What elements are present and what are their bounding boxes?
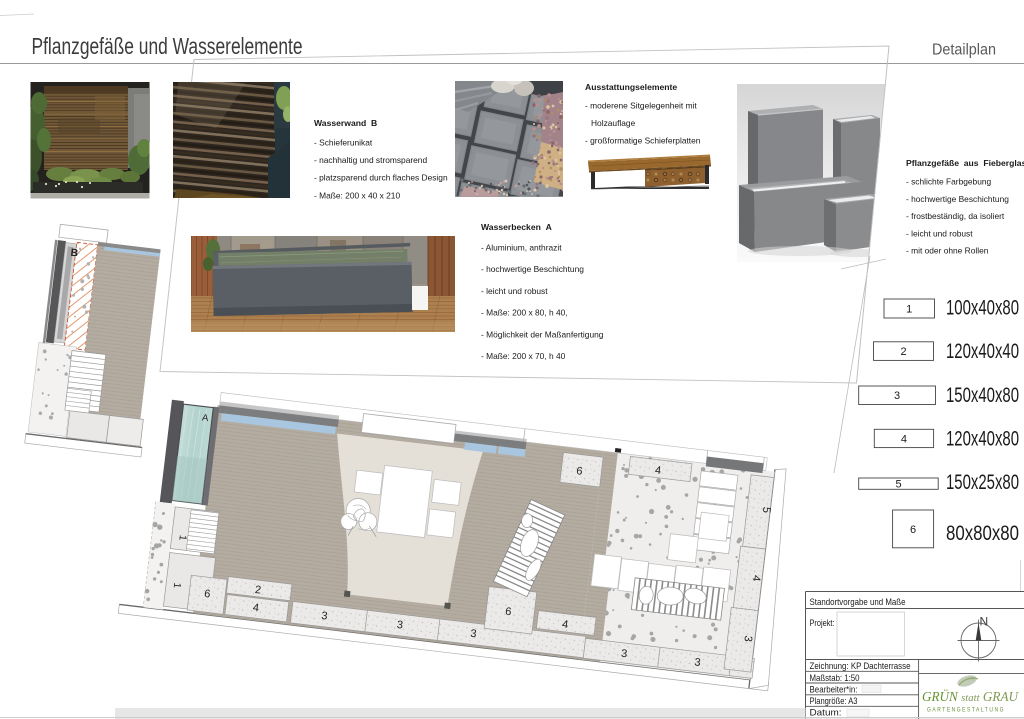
svg-text:Datum:: Datum: (810, 708, 842, 718)
svg-text:1: 1 (906, 304, 912, 316)
svg-text:Zeichnung: KP Dachterrasse: Zeichnung: KP Dachterrasse (810, 661, 911, 671)
svg-text:- Möglichkeit der Maßanfertigu: - Möglichkeit der Maßanfertigung (481, 329, 604, 339)
svg-text:- Maße: 200 x 70, h 40: - Maße: 200 x 70, h 40 (481, 351, 566, 361)
svg-text:Standortvorgabe und Maße: Standortvorgabe und Maße (810, 597, 906, 607)
svg-text:- moderene Sitgelegenheit mit: - moderene Sitgelegenheit mit (585, 101, 697, 111)
svg-text:Detailplan: Detailplan (932, 42, 996, 59)
svg-text:- Schieferunikat: - Schieferunikat (314, 138, 373, 148)
svg-text:- leicht und robust: - leicht und robust (906, 228, 973, 238)
svg-text:- nachhaltig und stromsparend: - nachhaltig und stromsparend (314, 155, 427, 165)
svg-text:120x40x40: 120x40x40 (946, 340, 1019, 363)
svg-text:6: 6 (910, 524, 916, 536)
svg-text:Pflanzgefäße aus Fieberglas: Pflanzgefäße aus Fieberglas (906, 158, 1024, 168)
svg-text:Wasserwand B: Wasserwand B (314, 118, 377, 128)
svg-text:Bearbeiter*in:: Bearbeiter*in: (810, 684, 858, 694)
svg-text:Wasserbecken A: Wasserbecken A (481, 222, 552, 232)
svg-text:Ausstattungselemente: Ausstattungselemente (585, 82, 677, 92)
svg-text:100x40x80: 100x40x80 (946, 297, 1019, 320)
svg-text:2: 2 (900, 346, 906, 358)
svg-text:Maßstab: 1:50: Maßstab: 1:50 (810, 673, 860, 683)
svg-text:N: N (980, 615, 989, 629)
svg-text:4: 4 (901, 433, 907, 445)
svg-text:- Aluminium, anthrazit: - Aluminium, anthrazit (481, 243, 562, 253)
svg-text:- großformatige Schieferplatte: - großformatige Schieferplatten (585, 136, 701, 146)
svg-text:GRÜN statt GRAU: GRÜN statt GRAU (922, 689, 1019, 704)
svg-text:- Maße: 200 x 80, h 40,: - Maße: 200 x 80, h 40, (481, 308, 568, 318)
svg-text:- schlichte Farbgebung: - schlichte Farbgebung (906, 177, 992, 187)
svg-text:Projekt:: Projekt: (810, 618, 835, 628)
svg-text:- hochwertige Beschichtung: - hochwertige Beschichtung (906, 194, 1009, 204)
svg-text:- leicht und robust: - leicht und robust (481, 286, 548, 296)
svg-text:Pflanzgefäße und Wasserelement: Pflanzgefäße und Wasserelemente (32, 33, 303, 59)
svg-text:3: 3 (894, 390, 900, 402)
svg-text:- platzsparend durch flaches D: - platzsparend durch flaches Design (314, 173, 448, 183)
svg-text:120x40x80: 120x40x80 (946, 428, 1019, 451)
svg-text:80x80x80: 80x80x80 (946, 522, 1019, 545)
svg-text:Holzauflage: Holzauflage (591, 118, 636, 128)
svg-text:- frostbeständig, da isoliert: - frostbeständig, da isoliert (906, 211, 1005, 221)
svg-text:GARTENGESTALTUNG: GARTENGESTALTUNG (927, 707, 1005, 714)
svg-text:150x40x80: 150x40x80 (946, 384, 1019, 407)
svg-text:- Maße: 200 x 40 x 210: - Maße: 200 x 40 x 210 (314, 190, 400, 200)
svg-text:5: 5 (895, 479, 901, 491)
svg-text:Plangröße: A3: Plangröße: A3 (810, 696, 858, 706)
svg-text:- mit oder ohne Rollen: - mit oder ohne Rollen (906, 246, 989, 256)
svg-text:150x25x80: 150x25x80 (946, 471, 1019, 494)
svg-text:- hochwertige Beschichtung: - hochwertige Beschichtung (481, 264, 584, 274)
